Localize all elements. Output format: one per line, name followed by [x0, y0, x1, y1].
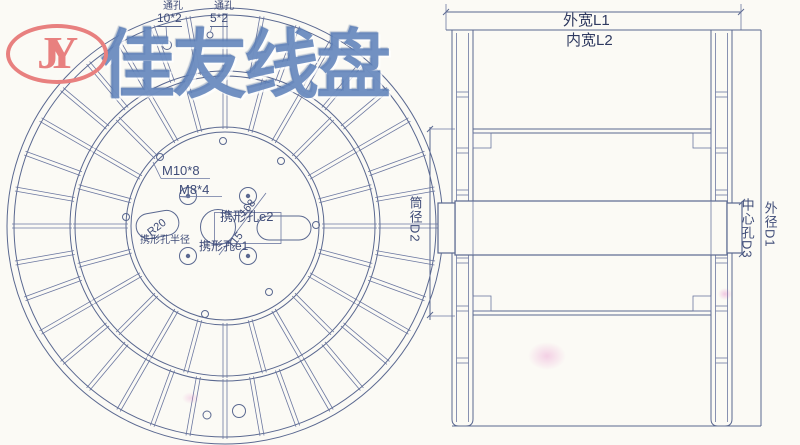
barrel-diameter-dim-label: 筒径D2 [408, 196, 422, 243]
slot-radius-caption-label: 携形孔半径 [140, 236, 190, 247]
outer-diameter-dim-label: 外径D1 [763, 201, 777, 248]
company-watermark: 佳友线盘 [100, 4, 388, 113]
drawing-sheet: 佳友线盘 JY 通孔 10*2 通孔 5*2 M10*8 M8*4 R20 携形… [0, 0, 800, 445]
outer-width-dim-label: 外宽L1 [563, 13, 610, 29]
slot-e2-label: 携形孔e2 [220, 210, 273, 224]
center-hole-dim-label: 中心孔D3 [740, 198, 754, 259]
center-hub [438, 201, 742, 255]
bolt-spec-m8-label: M8*4 [179, 183, 209, 197]
callout-hole-10-value: 10*2 [157, 12, 182, 27]
bolt-spec-m10-label: M10*8 [162, 164, 200, 178]
inner-width-dim-label: 内宽L2 [566, 33, 613, 49]
company-logo: JY [6, 24, 108, 84]
slot-e1-label: 携形孔e1 [199, 240, 248, 253]
callout-hole-5-value: 5*2 [210, 12, 228, 27]
side-view-drawing [427, 4, 761, 426]
logo-letters: JY [37, 26, 77, 79]
